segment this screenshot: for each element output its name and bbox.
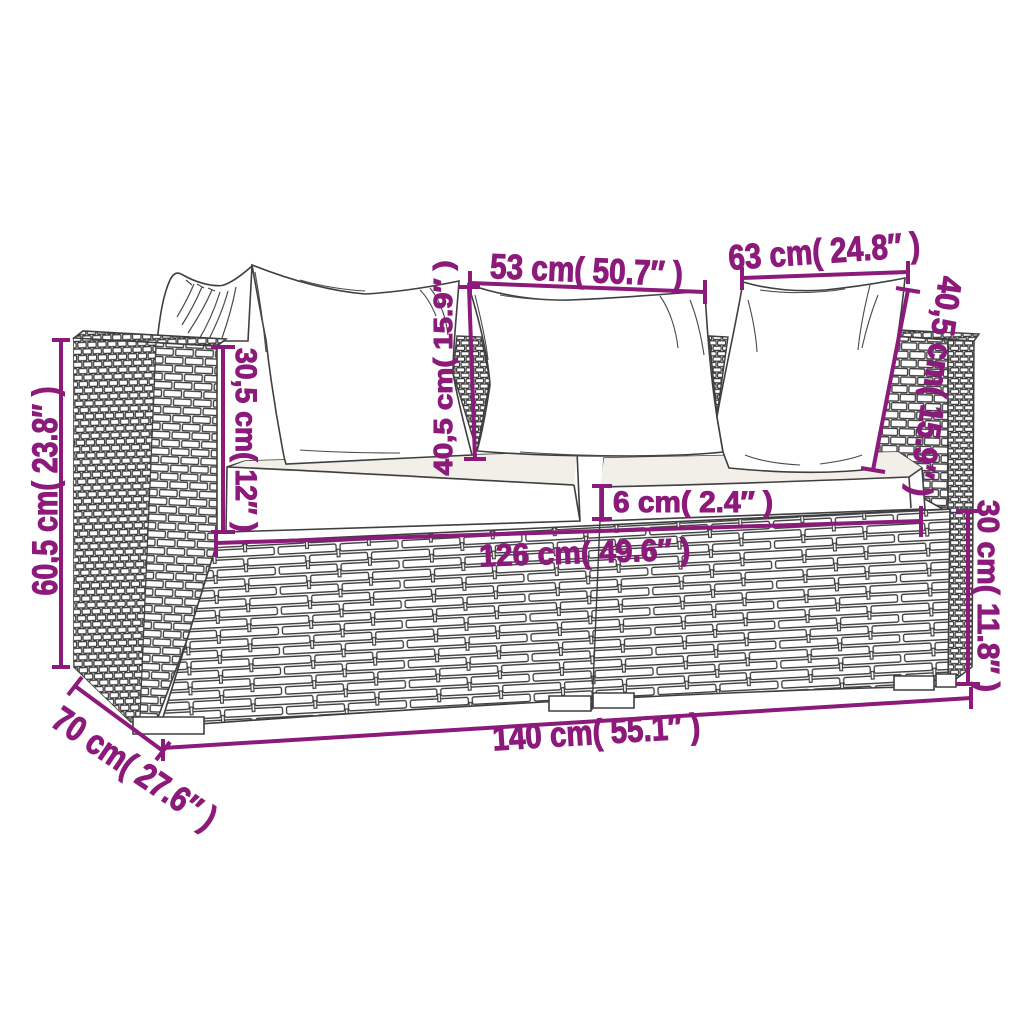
svg-text:53 cm( 50.7″ ): 53 cm( 50.7″ ) — [489, 247, 683, 294]
svg-text:30,5 cm( 12″ ): 30,5 cm( 12″ ) — [229, 348, 262, 532]
svg-text:126 cm( 49.6″ ): 126 cm( 49.6″ ) — [479, 532, 691, 574]
svg-text:30 cm( 11.8″ ): 30 cm( 11.8″ ) — [971, 500, 1006, 692]
svg-text:60,5 cm( 23.8″ ): 60,5 cm( 23.8″ ) — [26, 387, 65, 596]
svg-text:40,5 cm( 15.9″ ): 40,5 cm( 15.9″ ) — [428, 261, 458, 476]
svg-text:6 cm( 2.4″ ): 6 cm( 2.4″ ) — [613, 486, 773, 519]
